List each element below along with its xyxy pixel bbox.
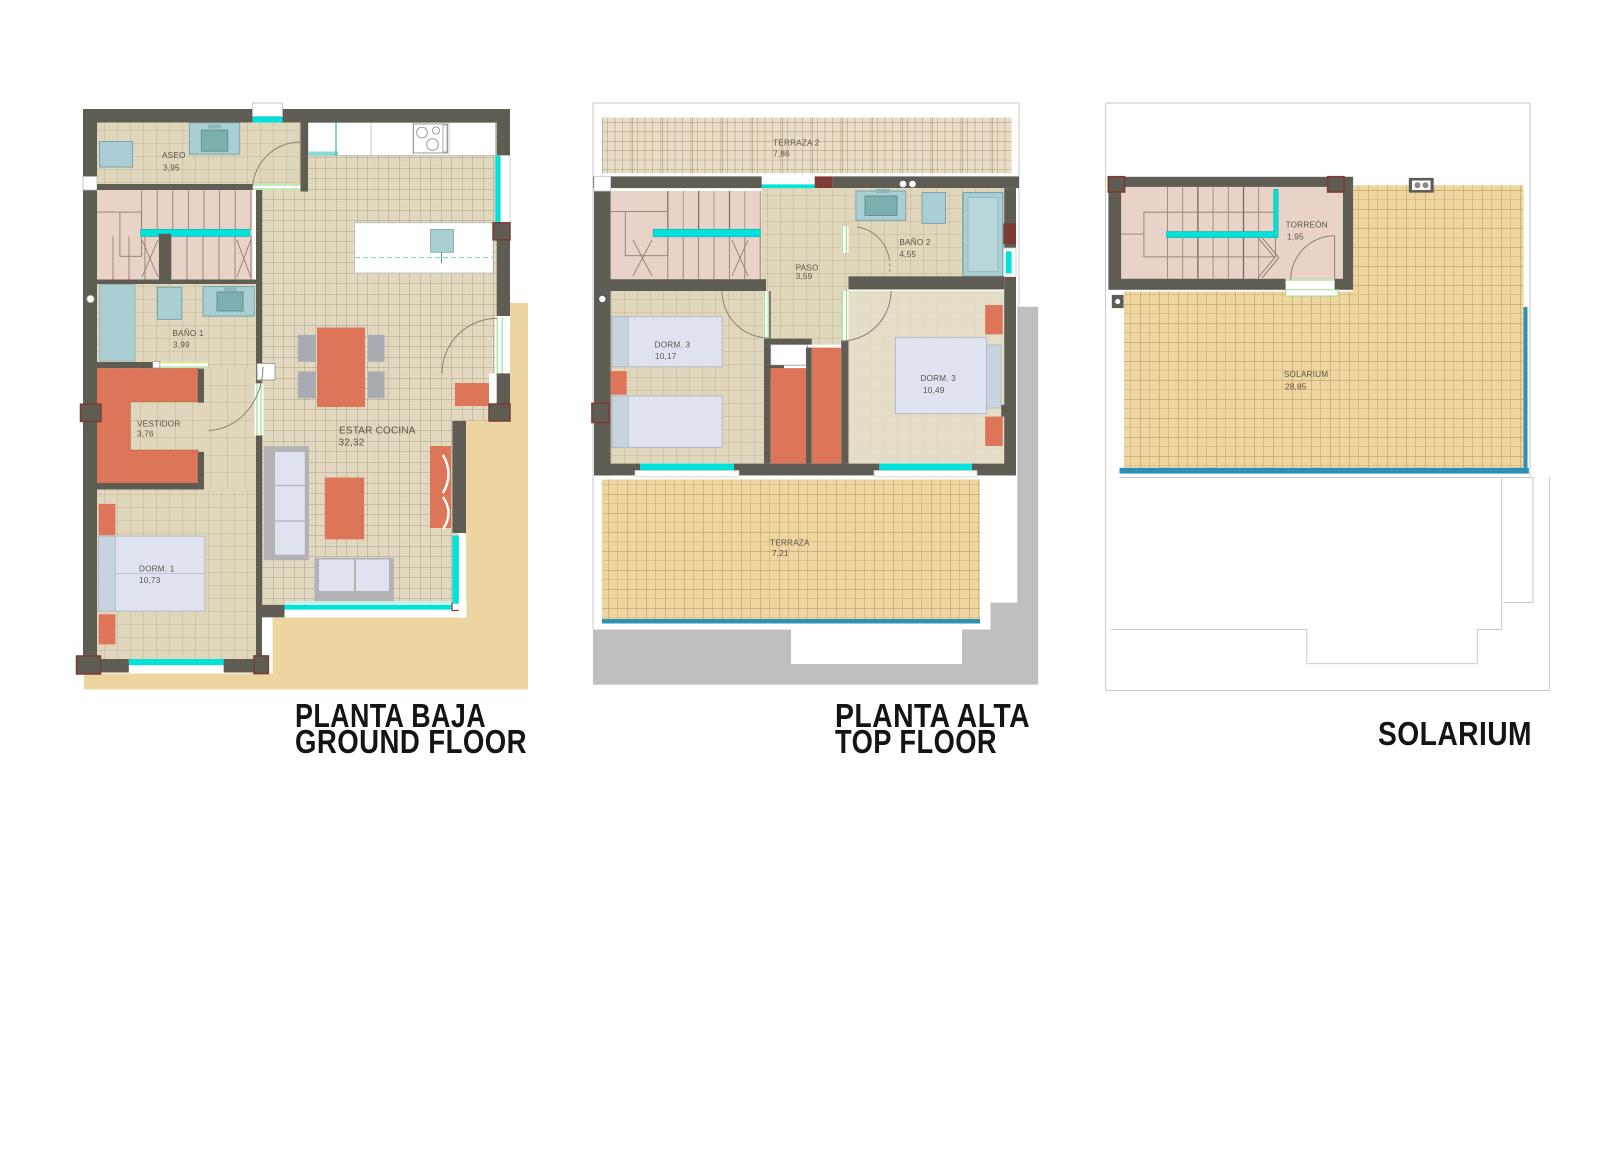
svg-text:SOLARIUM: SOLARIUM xyxy=(1284,370,1328,379)
svg-text:DORM. 1: DORM. 1 xyxy=(139,565,175,574)
svg-text:3,99: 3,99 xyxy=(173,341,190,350)
svg-text:VESTIDOR: VESTIDOR xyxy=(137,420,180,429)
svg-text:10,73: 10,73 xyxy=(139,576,161,585)
svg-text:PASO: PASO xyxy=(796,263,819,272)
svg-text:ASEO: ASEO xyxy=(162,151,186,160)
svg-text:BAÑO 1: BAÑO 1 xyxy=(173,328,204,338)
svg-text:3,76: 3,76 xyxy=(137,429,154,438)
svg-text:3,95: 3,95 xyxy=(163,164,180,173)
svg-text:TORREÓN: TORREÓN xyxy=(1286,219,1328,229)
svg-text:TOP FLOOR: TOP FLOOR xyxy=(835,723,997,760)
svg-text:DORM. 3: DORM. 3 xyxy=(655,341,691,350)
svg-text:TERRAZA 2: TERRAZA 2 xyxy=(773,139,820,148)
svg-text:4,55: 4,55 xyxy=(899,250,916,259)
svg-text:DORM. 3: DORM. 3 xyxy=(921,374,957,383)
svg-text:BAÑO 2: BAÑO 2 xyxy=(899,237,930,247)
svg-text:10,49: 10,49 xyxy=(923,386,945,395)
svg-text:1,95: 1,95 xyxy=(1287,233,1304,242)
svg-text:28,85: 28,85 xyxy=(1285,383,1307,392)
svg-text:GROUND FLOOR: GROUND FLOOR xyxy=(295,723,527,760)
svg-text:SOLARIUM: SOLARIUM xyxy=(1378,715,1532,752)
svg-text:ESTAR COCINA: ESTAR COCINA xyxy=(339,426,416,437)
svg-text:32,32: 32,32 xyxy=(339,438,365,449)
svg-text:10,17: 10,17 xyxy=(655,352,677,361)
svg-text:7,86: 7,86 xyxy=(773,150,790,159)
svg-text:7,21: 7,21 xyxy=(772,549,789,558)
svg-text:TERRAZA: TERRAZA xyxy=(770,539,810,548)
svg-text:3,59: 3,59 xyxy=(796,272,813,281)
